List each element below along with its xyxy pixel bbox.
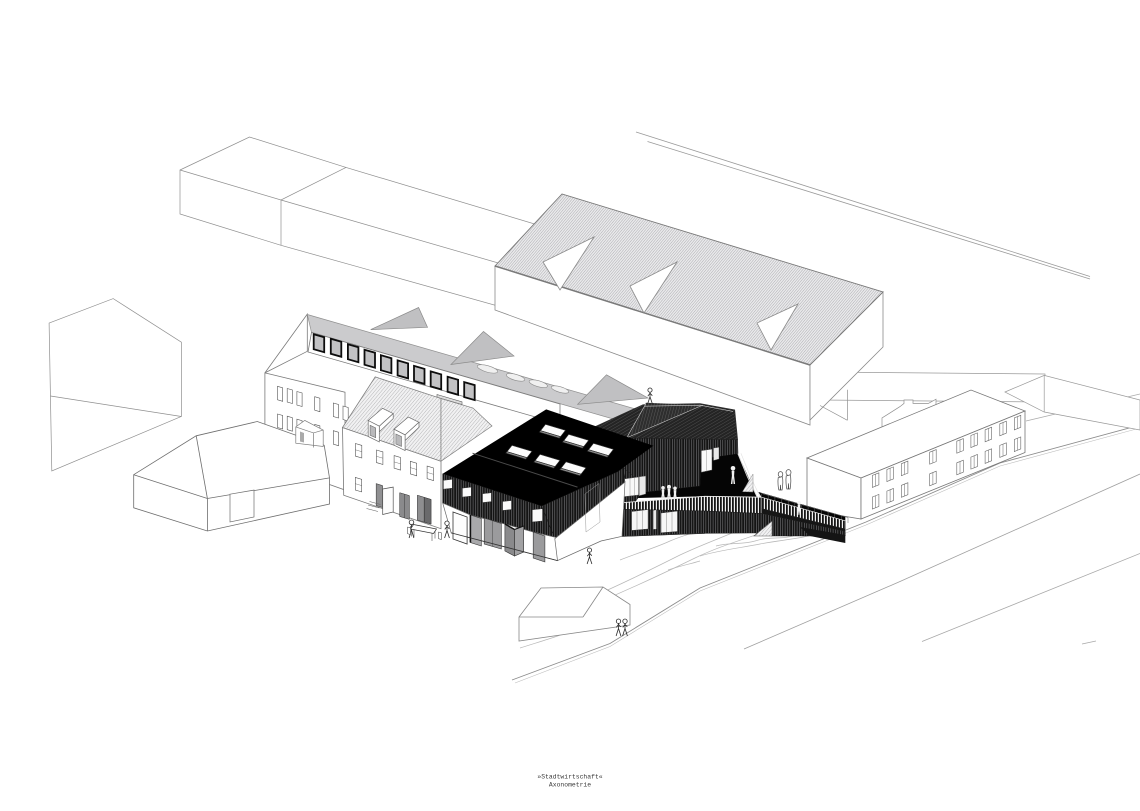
svg-text:Axonometrie: Axonometrie	[549, 782, 591, 789]
svg-text:»Stadtwirtschaft«: »Stadtwirtschaft«	[537, 774, 602, 781]
